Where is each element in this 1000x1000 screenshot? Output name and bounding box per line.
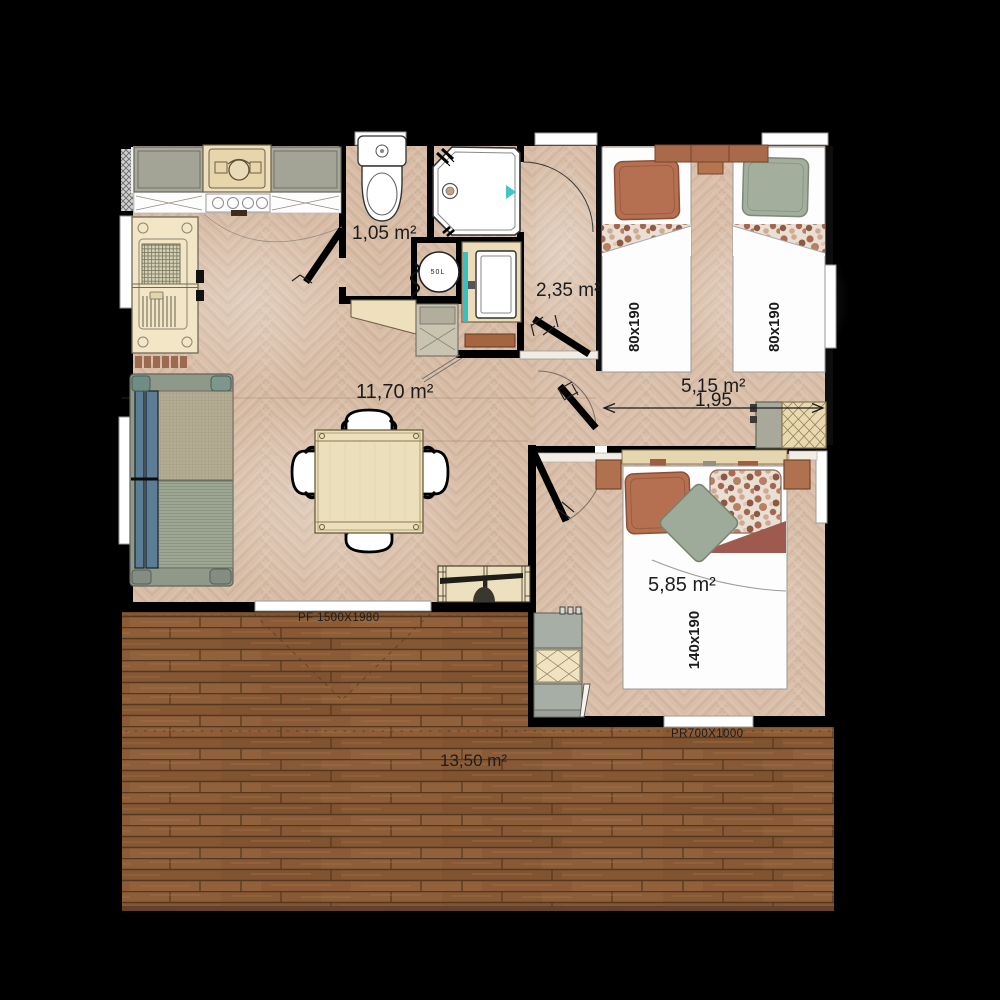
svg-text:2,35 m²: 2,35 m² — [536, 280, 600, 301]
svg-text:PR700X1000: PR700X1000 — [671, 728, 743, 740]
svg-text:140x190: 140x190 — [686, 611, 703, 669]
svg-text:1,95: 1,95 — [695, 390, 732, 411]
svg-text:1,05 m²: 1,05 m² — [352, 223, 416, 244]
svg-text:11,70 m²: 11,70 m² — [356, 381, 434, 403]
svg-text:PF 1500X1980: PF 1500X1980 — [298, 612, 380, 624]
svg-text:50L: 50L — [431, 269, 446, 276]
svg-text:80x190: 80x190 — [766, 302, 783, 352]
svg-text:5,85 m²: 5,85 m² — [648, 574, 716, 596]
svg-text:13,50 m²: 13,50 m² — [440, 751, 507, 770]
svg-text:80x190: 80x190 — [626, 302, 643, 352]
